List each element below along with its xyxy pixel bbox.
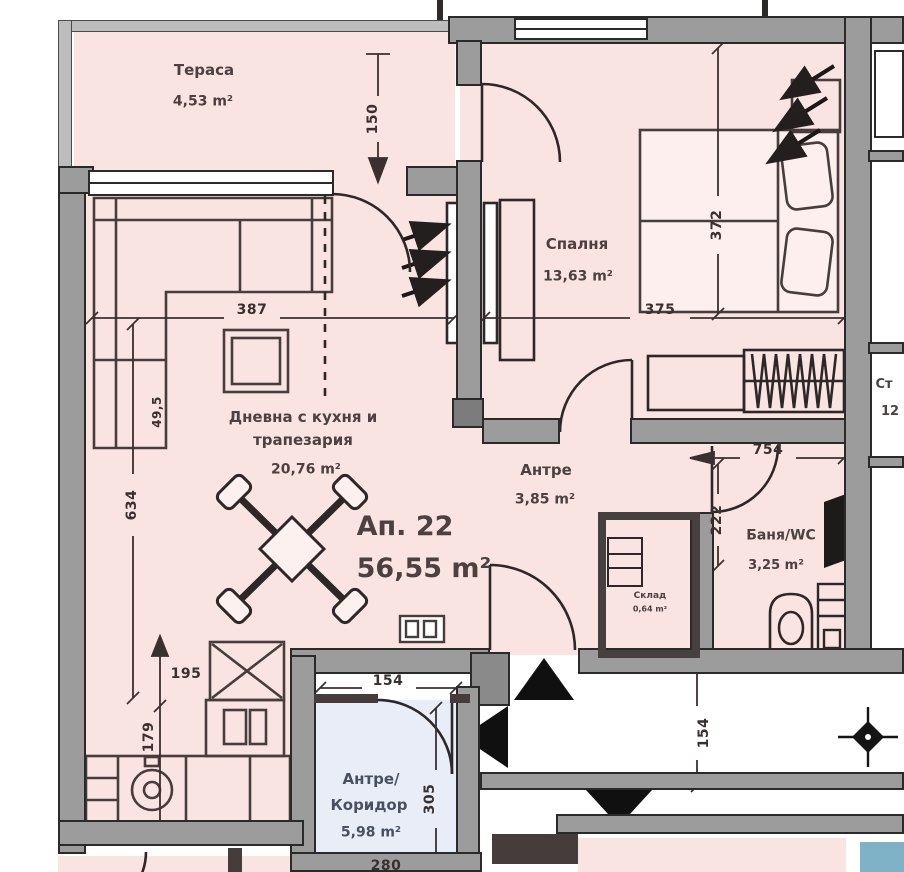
bedroom-bottom-wall-right	[630, 418, 846, 444]
dim-305: 305	[422, 784, 438, 815]
corridor-name-line1: Антре/	[342, 771, 399, 788]
hall-lower-wall-2	[556, 814, 904, 834]
neighbor-stub-2	[868, 342, 904, 354]
bedroom-window	[514, 18, 648, 40]
coffee-table	[224, 330, 288, 392]
corridor-thin-wall-right	[450, 694, 470, 703]
dim-280: 280	[371, 858, 402, 872]
toilet	[770, 594, 812, 654]
neighbor-room-area: 12	[881, 405, 899, 419]
apartment-number: Ап. 22	[357, 512, 454, 542]
lower-apartment-door	[492, 834, 578, 864]
neighbor-balcony-door	[874, 50, 904, 138]
dim-754: 754	[753, 442, 784, 458]
bath-name: Баня/WC	[746, 528, 816, 543]
living-terrace-window	[88, 170, 334, 196]
up-triangle	[514, 658, 574, 700]
corridor-thin-wall-left	[314, 694, 378, 703]
dim-150: 150	[365, 104, 381, 135]
panel-box	[400, 616, 444, 642]
corridor-right-wall	[456, 686, 480, 872]
floor-plan: Тераса 4,53 m² Спалня 13,63 m² Дневна с …	[0, 0, 904, 872]
dim-154-hall: 154	[696, 718, 712, 749]
lower-left-wall-piece	[228, 848, 242, 872]
bedroom-name: Спалня	[546, 236, 608, 253]
entrance-door-arc	[490, 565, 575, 650]
corridor-name-line2: Коридор	[331, 797, 408, 814]
hall-lower-wall-1	[480, 772, 904, 790]
dim-387: 387	[237, 302, 268, 318]
storage-name: Склад	[634, 592, 667, 602]
lower-left-door-arc	[88, 852, 146, 872]
bed	[640, 80, 840, 312]
dim-634: 634	[124, 490, 140, 521]
kitchen-bottom-wall	[58, 820, 304, 846]
crosshair-marker	[838, 707, 898, 767]
corridor-door-arc	[378, 700, 452, 774]
terrace-top-wall	[58, 20, 455, 32]
living-name-line1: Дневна с кухня и	[229, 409, 378, 426]
neighbor-stub-3	[868, 456, 904, 468]
living-bedroom-wall-lower	[456, 160, 482, 428]
bedroom-top-door-arc	[482, 84, 560, 162]
sink	[818, 584, 846, 654]
dim-179: 179	[141, 722, 157, 753]
terrace-door-arc	[332, 194, 410, 272]
neighbor-room-name: Ст	[875, 378, 892, 392]
antre-area: 3,85 m²	[515, 492, 575, 507]
bedroom-bottom-wall-left	[482, 418, 560, 444]
dim-49: 49,5	[150, 396, 164, 428]
terrace-left-wall	[58, 20, 72, 172]
right-wall	[844, 16, 872, 662]
living-name-line2: трапезария	[253, 432, 353, 449]
bedroom-bottom-door-arc	[560, 360, 632, 432]
terrace-name: Тераса	[174, 62, 234, 79]
dim-222: 222	[709, 505, 725, 536]
dining-set	[215, 473, 369, 625]
terrace-door-pier	[406, 166, 462, 196]
dim-195: 195	[171, 666, 202, 682]
storage-room	[598, 512, 700, 658]
corridor-top-wall-left	[290, 648, 490, 674]
apartment-area: 56,55 m²	[357, 554, 492, 584]
wardrobe	[648, 350, 844, 412]
left-wall	[58, 170, 86, 854]
neighbor-stub-1	[868, 150, 904, 162]
bedroom-area: 13,63 m²	[543, 269, 613, 284]
bath-shaft	[824, 494, 846, 568]
dim-375: 375	[645, 302, 676, 318]
storage-area: 0,64 m²	[633, 606, 667, 615]
living-area: 20,76 m²	[271, 462, 341, 477]
corridor-area: 5,98 m²	[341, 825, 401, 840]
antre-name: Антре	[520, 462, 572, 479]
wall-cap	[452, 398, 484, 428]
terrace-area: 4,53 m²	[173, 94, 233, 109]
bath-area: 3,25 m²	[748, 559, 804, 573]
dim-154-corridor: 154	[373, 673, 404, 689]
living-bedroom-wall-upper	[456, 40, 482, 86]
dim-372: 372	[709, 210, 725, 241]
